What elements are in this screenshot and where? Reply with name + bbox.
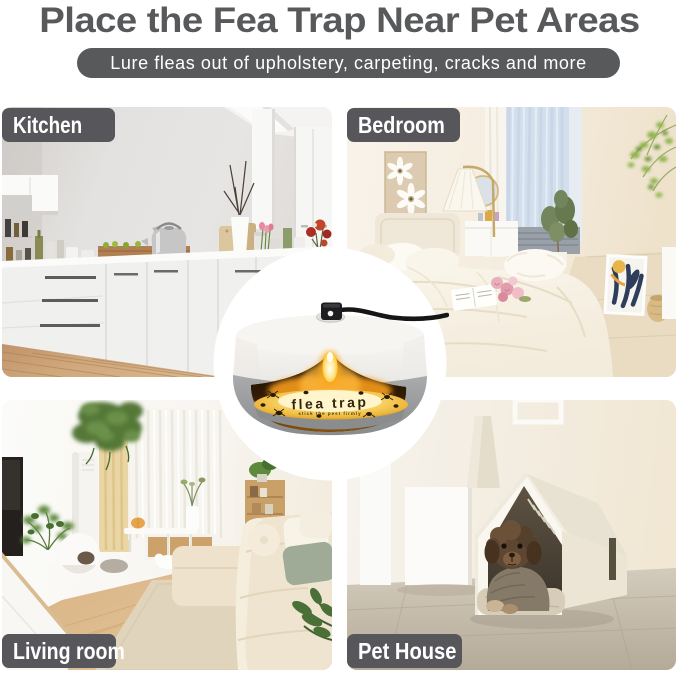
svg-text:flea trap: flea trap (291, 394, 368, 413)
svg-text:stick the pest firmly: stick the pest firmly (298, 411, 361, 416)
